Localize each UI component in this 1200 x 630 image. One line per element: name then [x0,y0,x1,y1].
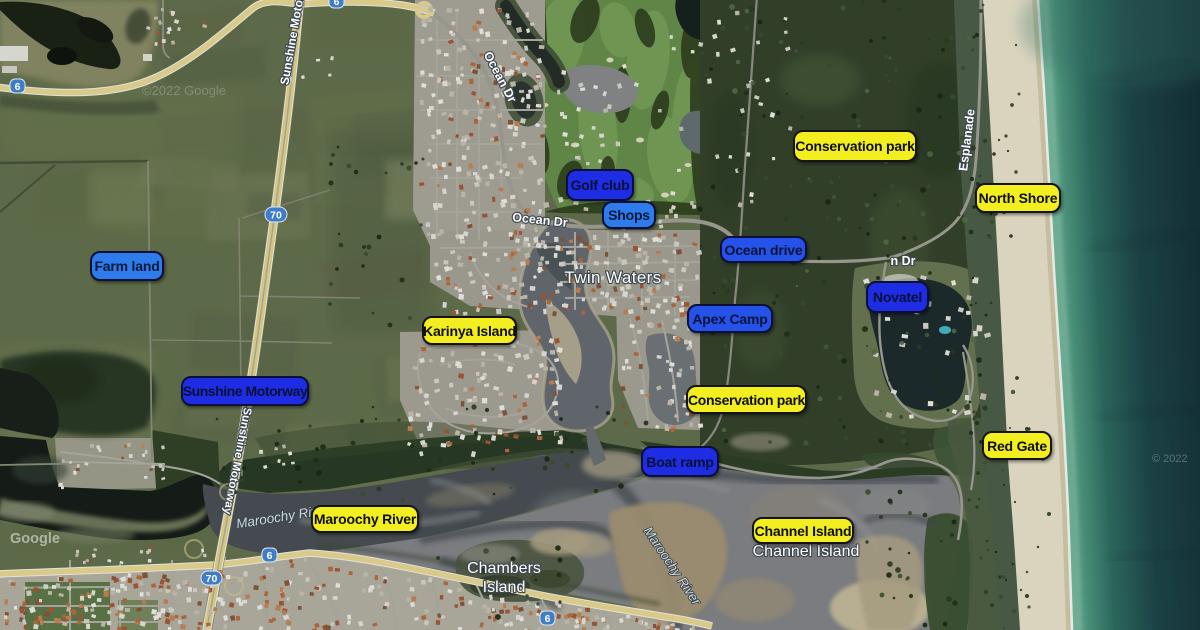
svg-text:Google: Google [10,531,60,547]
svg-text:6: 6 [545,613,551,625]
svg-text:Island: Island [483,579,526,596]
svg-text:n Dr: n Dr [891,254,916,268]
svg-text:© 2022: © 2022 [1152,453,1188,465]
svg-text:6: 6 [15,81,21,93]
svg-text:©2022 Google: ©2022 Google [142,83,226,98]
svg-text:Twin Waters: Twin Waters [564,268,661,287]
svg-text:Channel Island: Channel Island [753,543,860,560]
svg-text:70: 70 [206,573,218,585]
svg-text:6: 6 [267,550,273,562]
svg-text:Chambers: Chambers [467,560,541,577]
svg-text:70: 70 [270,210,282,222]
svg-text:6: 6 [334,0,340,8]
